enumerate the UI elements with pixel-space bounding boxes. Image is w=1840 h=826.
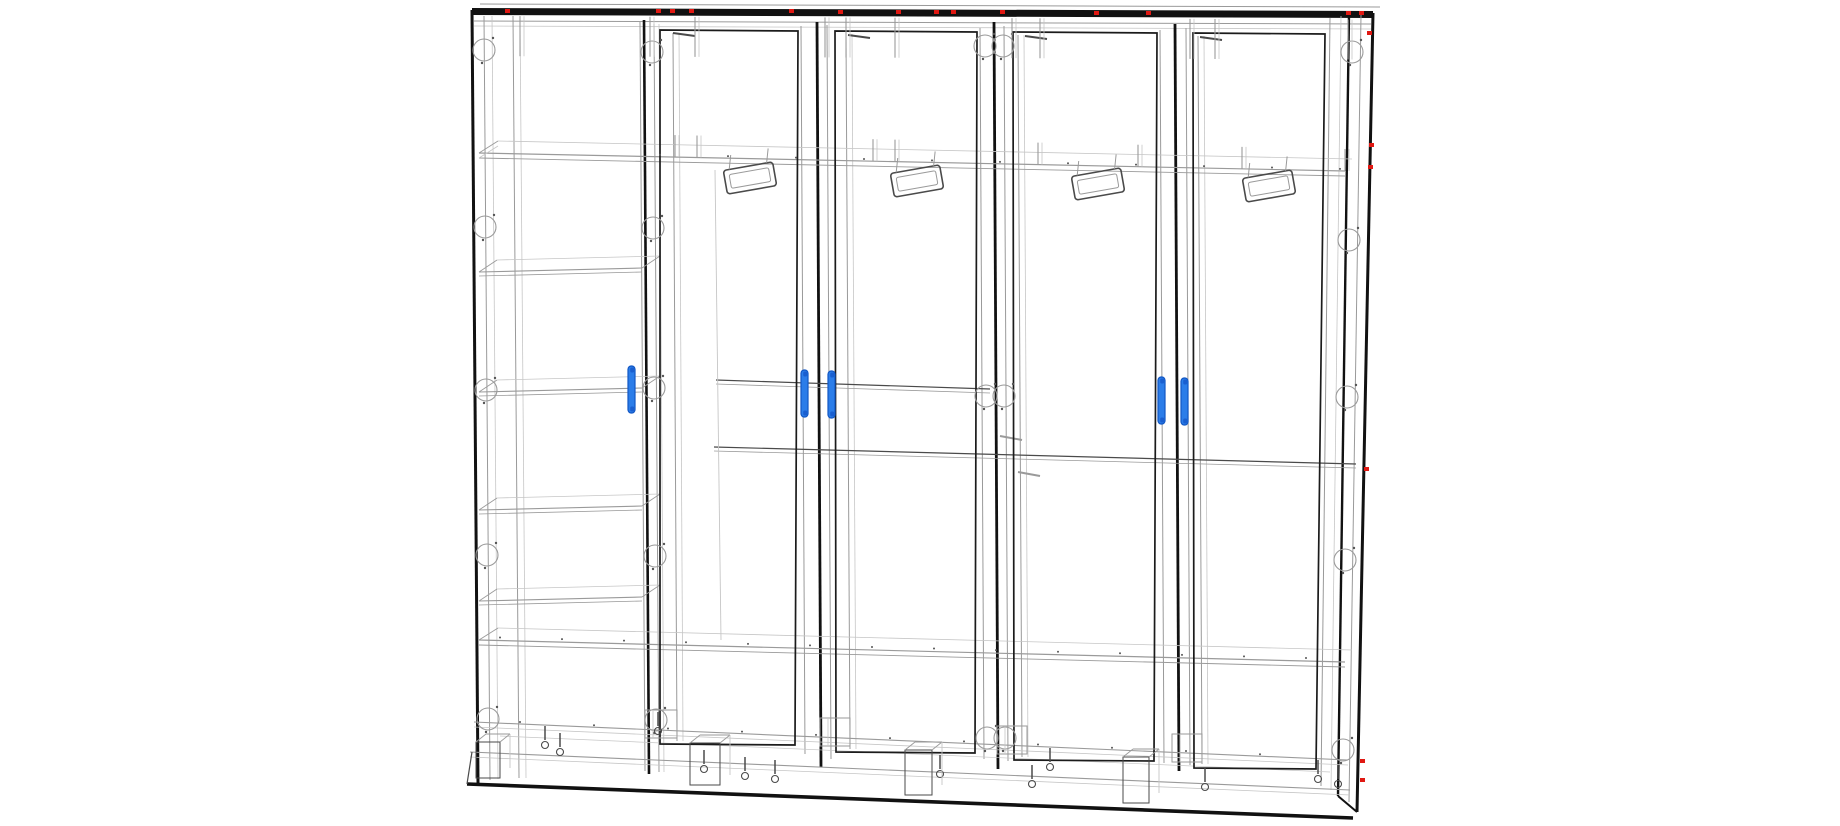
plinth-bolts bbox=[542, 712, 1342, 791]
structure-line bbox=[1004, 26, 1008, 761]
drill-dot bbox=[1001, 408, 1003, 410]
drill-dot bbox=[1340, 762, 1342, 764]
bolt bbox=[557, 733, 564, 756]
drill-dot bbox=[496, 706, 498, 708]
door-handle-bar bbox=[628, 366, 635, 413]
red-marker bbox=[1369, 143, 1374, 147]
red-marker bbox=[656, 9, 661, 13]
cam-lock bbox=[976, 725, 998, 752]
drill-dot bbox=[1342, 572, 1344, 574]
door-handles bbox=[628, 366, 1188, 425]
structure-line bbox=[716, 384, 990, 393]
reference-dot bbox=[1339, 168, 1341, 170]
drill-dot bbox=[1000, 58, 1002, 60]
cam-lock-fittings bbox=[473, 33, 1363, 764]
red-marker bbox=[1360, 778, 1365, 782]
shelf bbox=[479, 494, 660, 514]
structure-line bbox=[513, 16, 519, 778]
hanger-link bbox=[764, 148, 770, 162]
bolt bbox=[701, 750, 708, 773]
structure-line bbox=[484, 16, 490, 780]
reference-dots bbox=[499, 154, 1341, 755]
shelf-side-edge bbox=[479, 589, 497, 601]
plinth-block-top bbox=[500, 734, 510, 742]
shelf-back-edge bbox=[497, 256, 660, 260]
foot-bracket bbox=[820, 718, 850, 746]
drill-dot bbox=[984, 750, 986, 752]
reference-dot bbox=[795, 157, 797, 159]
plinth-block-front bbox=[905, 750, 932, 795]
door-handle[interactable] bbox=[1181, 378, 1188, 425]
reference-dot bbox=[809, 644, 811, 646]
structure-line bbox=[479, 645, 1345, 667]
reference-dot bbox=[747, 643, 749, 645]
drill-dot bbox=[1349, 64, 1351, 66]
hanger-bracket-inner bbox=[729, 168, 771, 189]
structure-line bbox=[679, 33, 683, 741]
shelf-front-edge bbox=[479, 506, 642, 510]
structure-line bbox=[474, 21, 1371, 24]
cam-lock-circle bbox=[1338, 229, 1360, 251]
drill-dot bbox=[494, 377, 496, 379]
door-handle-bar bbox=[1158, 377, 1165, 424]
drill-dot bbox=[660, 39, 662, 41]
reference-dot bbox=[659, 154, 661, 156]
drill-dot bbox=[983, 408, 985, 410]
door-handle-bar bbox=[828, 371, 835, 418]
bolt-head bbox=[542, 742, 549, 749]
drill-dot bbox=[652, 568, 654, 570]
bolt-head bbox=[1202, 784, 1209, 791]
drill-dot bbox=[651, 400, 653, 402]
red-marker bbox=[951, 10, 956, 14]
red-marker bbox=[934, 10, 939, 14]
hanger-link bbox=[1246, 163, 1252, 177]
structure-line bbox=[1198, 36, 1202, 764]
red-marker bbox=[1000, 10, 1005, 14]
structure-line bbox=[479, 141, 498, 153]
reference-dot bbox=[727, 155, 729, 157]
reference-dot bbox=[871, 646, 873, 648]
reference-dot bbox=[519, 721, 521, 723]
hanger-bracket-outer bbox=[723, 162, 776, 194]
red-marker bbox=[689, 9, 694, 13]
cam-lock bbox=[1338, 227, 1360, 254]
structure-line bbox=[714, 451, 1356, 468]
structure-line bbox=[467, 752, 472, 784]
structure-line bbox=[1338, 796, 1357, 812]
reference-dot bbox=[1037, 744, 1039, 746]
structure-line bbox=[846, 34, 850, 749]
structure-line bbox=[716, 380, 990, 389]
plinth-blocks bbox=[476, 734, 1159, 803]
red-marker bbox=[1360, 759, 1365, 763]
reference-dot bbox=[889, 737, 891, 739]
plinth-block-top bbox=[932, 742, 942, 750]
structure-line bbox=[848, 35, 870, 38]
door-handle-cap bbox=[830, 373, 834, 378]
reference-dot bbox=[1067, 162, 1069, 164]
red-marker bbox=[896, 10, 901, 14]
structure-line bbox=[852, 34, 856, 749]
red-marker bbox=[1364, 467, 1369, 471]
drill-dot bbox=[1002, 750, 1004, 752]
cam-lock-circle bbox=[976, 727, 998, 749]
hanger-bracket bbox=[888, 151, 944, 197]
red-marker bbox=[1146, 11, 1151, 15]
structure-line bbox=[1321, 18, 1330, 786]
bolt bbox=[1202, 768, 1209, 791]
door-handle-cap bbox=[803, 411, 807, 416]
red-marker bbox=[505, 9, 510, 13]
reference-dot bbox=[995, 649, 997, 651]
drill-dot bbox=[649, 64, 651, 66]
drill-dot bbox=[1357, 227, 1359, 229]
door-handle-bar bbox=[1181, 378, 1188, 425]
plinth-block-top bbox=[720, 735, 730, 743]
reference-dot bbox=[1203, 165, 1205, 167]
drill-dot bbox=[663, 543, 665, 545]
shelf-front-edge bbox=[479, 388, 642, 392]
shelf-front-edge bbox=[479, 268, 642, 272]
reference-dot bbox=[1181, 654, 1183, 656]
shelf-back-edge bbox=[497, 494, 660, 498]
door-handle-bar bbox=[801, 370, 808, 417]
red-marker bbox=[1094, 11, 1099, 15]
shelf-front-edge bbox=[479, 597, 642, 601]
reference-dot bbox=[999, 161, 1001, 163]
drill-dot bbox=[481, 62, 483, 64]
structure-line bbox=[470, 752, 1350, 790]
hanger-link bbox=[727, 155, 733, 169]
bolt bbox=[1047, 748, 1054, 771]
reference-dot bbox=[1057, 651, 1059, 653]
plinth-block bbox=[905, 742, 942, 795]
hanger-bracket-outer bbox=[890, 165, 943, 197]
door-handle[interactable] bbox=[801, 370, 808, 417]
door-handle-cap bbox=[630, 407, 634, 412]
red-marker bbox=[1346, 11, 1351, 15]
structure-line bbox=[1000, 436, 1022, 440]
structure-line bbox=[474, 26, 1371, 29]
drill-dot bbox=[1344, 409, 1346, 411]
hanger-bracket bbox=[721, 148, 777, 194]
structure-line bbox=[472, 12, 1373, 15]
hanger-link bbox=[1283, 156, 1289, 170]
hanger-link bbox=[1075, 161, 1081, 175]
red-marker bbox=[1367, 31, 1372, 35]
door-handle-cap bbox=[1160, 379, 1164, 384]
shelf-front-edge bbox=[479, 510, 642, 514]
door-panel bbox=[1013, 32, 1157, 761]
door-handle-cap bbox=[630, 368, 634, 373]
bolt-head bbox=[1047, 764, 1054, 771]
structure-line bbox=[1204, 36, 1208, 764]
reference-dot bbox=[1135, 164, 1137, 166]
shelf-side-edge bbox=[479, 380, 497, 392]
cam-lock-circle bbox=[475, 379, 497, 401]
reference-dot bbox=[963, 740, 965, 742]
reference-dot bbox=[561, 638, 563, 640]
cam-lock-circle bbox=[474, 216, 496, 238]
hanger-bracket-inner bbox=[1077, 174, 1119, 195]
reference-dot bbox=[1259, 753, 1261, 755]
red-marker bbox=[789, 9, 794, 13]
cam-lock bbox=[975, 383, 997, 410]
cam-lock bbox=[477, 706, 499, 733]
reference-dot bbox=[815, 734, 817, 736]
structure-line bbox=[492, 16, 498, 779]
reference-dot bbox=[1111, 747, 1113, 749]
structure-line bbox=[479, 640, 1345, 662]
bolt bbox=[542, 726, 549, 749]
drill-dot bbox=[1353, 547, 1355, 549]
reference-dot bbox=[667, 727, 669, 729]
structure-line bbox=[980, 28, 984, 759]
bolt-head bbox=[742, 773, 749, 780]
shelf bbox=[479, 256, 660, 276]
cad-viewport[interactable] bbox=[0, 0, 1840, 826]
reference-dot bbox=[1119, 652, 1121, 654]
reference-dot bbox=[593, 724, 595, 726]
left-bay-shelves bbox=[479, 256, 660, 605]
reference-dot bbox=[499, 637, 501, 639]
drill-dot bbox=[483, 402, 485, 404]
drill-dot bbox=[1355, 384, 1357, 386]
drill-dot bbox=[1351, 737, 1353, 739]
shelf-front-edge bbox=[479, 272, 642, 276]
shelf-front-edge bbox=[479, 601, 642, 605]
drill-dot bbox=[1346, 252, 1348, 254]
structure-line bbox=[480, 4, 1380, 7]
drill-dot bbox=[664, 707, 666, 709]
hanger-bracket-outer bbox=[1071, 168, 1124, 200]
structure-line bbox=[479, 158, 1345, 176]
drill-dot bbox=[493, 214, 495, 216]
reference-dot bbox=[863, 158, 865, 160]
cam-lock bbox=[475, 377, 497, 404]
door-handle[interactable] bbox=[628, 366, 635, 413]
reference-dot bbox=[1305, 657, 1307, 659]
structure-line bbox=[817, 22, 821, 767]
cam-lock-circle bbox=[476, 544, 498, 566]
structure-line bbox=[673, 33, 695, 36]
door-handle-cap bbox=[803, 372, 807, 377]
door-handle-cap bbox=[1183, 380, 1187, 385]
structure-line bbox=[714, 447, 1356, 464]
bolt-head bbox=[772, 776, 779, 783]
structure-line bbox=[479, 153, 1345, 171]
structure-line bbox=[1024, 35, 1028, 757]
drill-dot bbox=[495, 542, 497, 544]
cam-lock-circle bbox=[1332, 739, 1354, 761]
carcass-lines bbox=[467, 4, 1380, 818]
bolt-head bbox=[701, 766, 708, 773]
shelf-back-edge bbox=[497, 585, 660, 589]
hanger-bracket bbox=[1069, 154, 1125, 200]
reference-dot bbox=[623, 640, 625, 642]
foot-bracket-frame bbox=[820, 718, 850, 746]
drill-dot bbox=[650, 240, 652, 242]
hanger-bracket-inner bbox=[896, 171, 938, 192]
red-marker bbox=[1368, 165, 1373, 169]
structure-line bbox=[1018, 472, 1040, 476]
structure-line bbox=[498, 628, 1352, 650]
reference-dot bbox=[1185, 750, 1187, 752]
drill-dot bbox=[982, 58, 984, 60]
bolt bbox=[772, 760, 779, 783]
plinth-block bbox=[476, 734, 510, 778]
shelf bbox=[479, 585, 660, 605]
drill-dot bbox=[484, 567, 486, 569]
reference-dot bbox=[741, 731, 743, 733]
wardrobe-wireframe-drawing bbox=[0, 0, 1840, 826]
red-marker bbox=[838, 10, 843, 14]
reference-dot bbox=[1243, 655, 1245, 657]
structure-line bbox=[715, 170, 721, 640]
shelf-front-edge bbox=[479, 392, 642, 396]
bolt-head bbox=[557, 749, 564, 756]
red-marker bbox=[1359, 11, 1364, 15]
door-handle-cap bbox=[830, 412, 834, 417]
door-handle[interactable] bbox=[828, 371, 835, 418]
plinth-block-front bbox=[476, 742, 500, 778]
plinth-block-front bbox=[690, 743, 720, 785]
bolt-head bbox=[1315, 776, 1322, 783]
drill-dot bbox=[994, 383, 996, 385]
plinth-block bbox=[690, 735, 730, 785]
drill-dot bbox=[1012, 383, 1014, 385]
structure-line bbox=[474, 722, 1348, 760]
structure-line bbox=[1018, 35, 1022, 757]
door-handle[interactable] bbox=[1158, 377, 1165, 424]
drill-dot bbox=[482, 239, 484, 241]
structure-line bbox=[479, 146, 498, 158]
bolt bbox=[742, 757, 749, 780]
structure-line bbox=[474, 727, 1348, 765]
cam-lock bbox=[474, 214, 496, 241]
drill-dot bbox=[485, 731, 487, 733]
hanger-bracket bbox=[1240, 156, 1296, 202]
reference-dot bbox=[933, 648, 935, 650]
red-marker bbox=[670, 9, 675, 13]
structure-line bbox=[520, 16, 526, 778]
drill-dot bbox=[993, 33, 995, 35]
reference-dot bbox=[1271, 166, 1273, 168]
drill-dot bbox=[662, 375, 664, 377]
reference-dot bbox=[931, 159, 933, 161]
drill-dot bbox=[1360, 39, 1362, 41]
hanger-link bbox=[931, 151, 937, 165]
structure-line bbox=[1175, 24, 1179, 771]
drill-dot bbox=[661, 215, 663, 217]
door-handle-cap bbox=[1160, 418, 1164, 423]
door-handle-cap bbox=[1183, 419, 1187, 424]
hanger-bracket-inner bbox=[1248, 176, 1290, 197]
reference-dot bbox=[685, 641, 687, 643]
cam-lock bbox=[476, 542, 498, 569]
drill-dot bbox=[492, 37, 494, 39]
cam-lock-circle bbox=[477, 708, 499, 730]
